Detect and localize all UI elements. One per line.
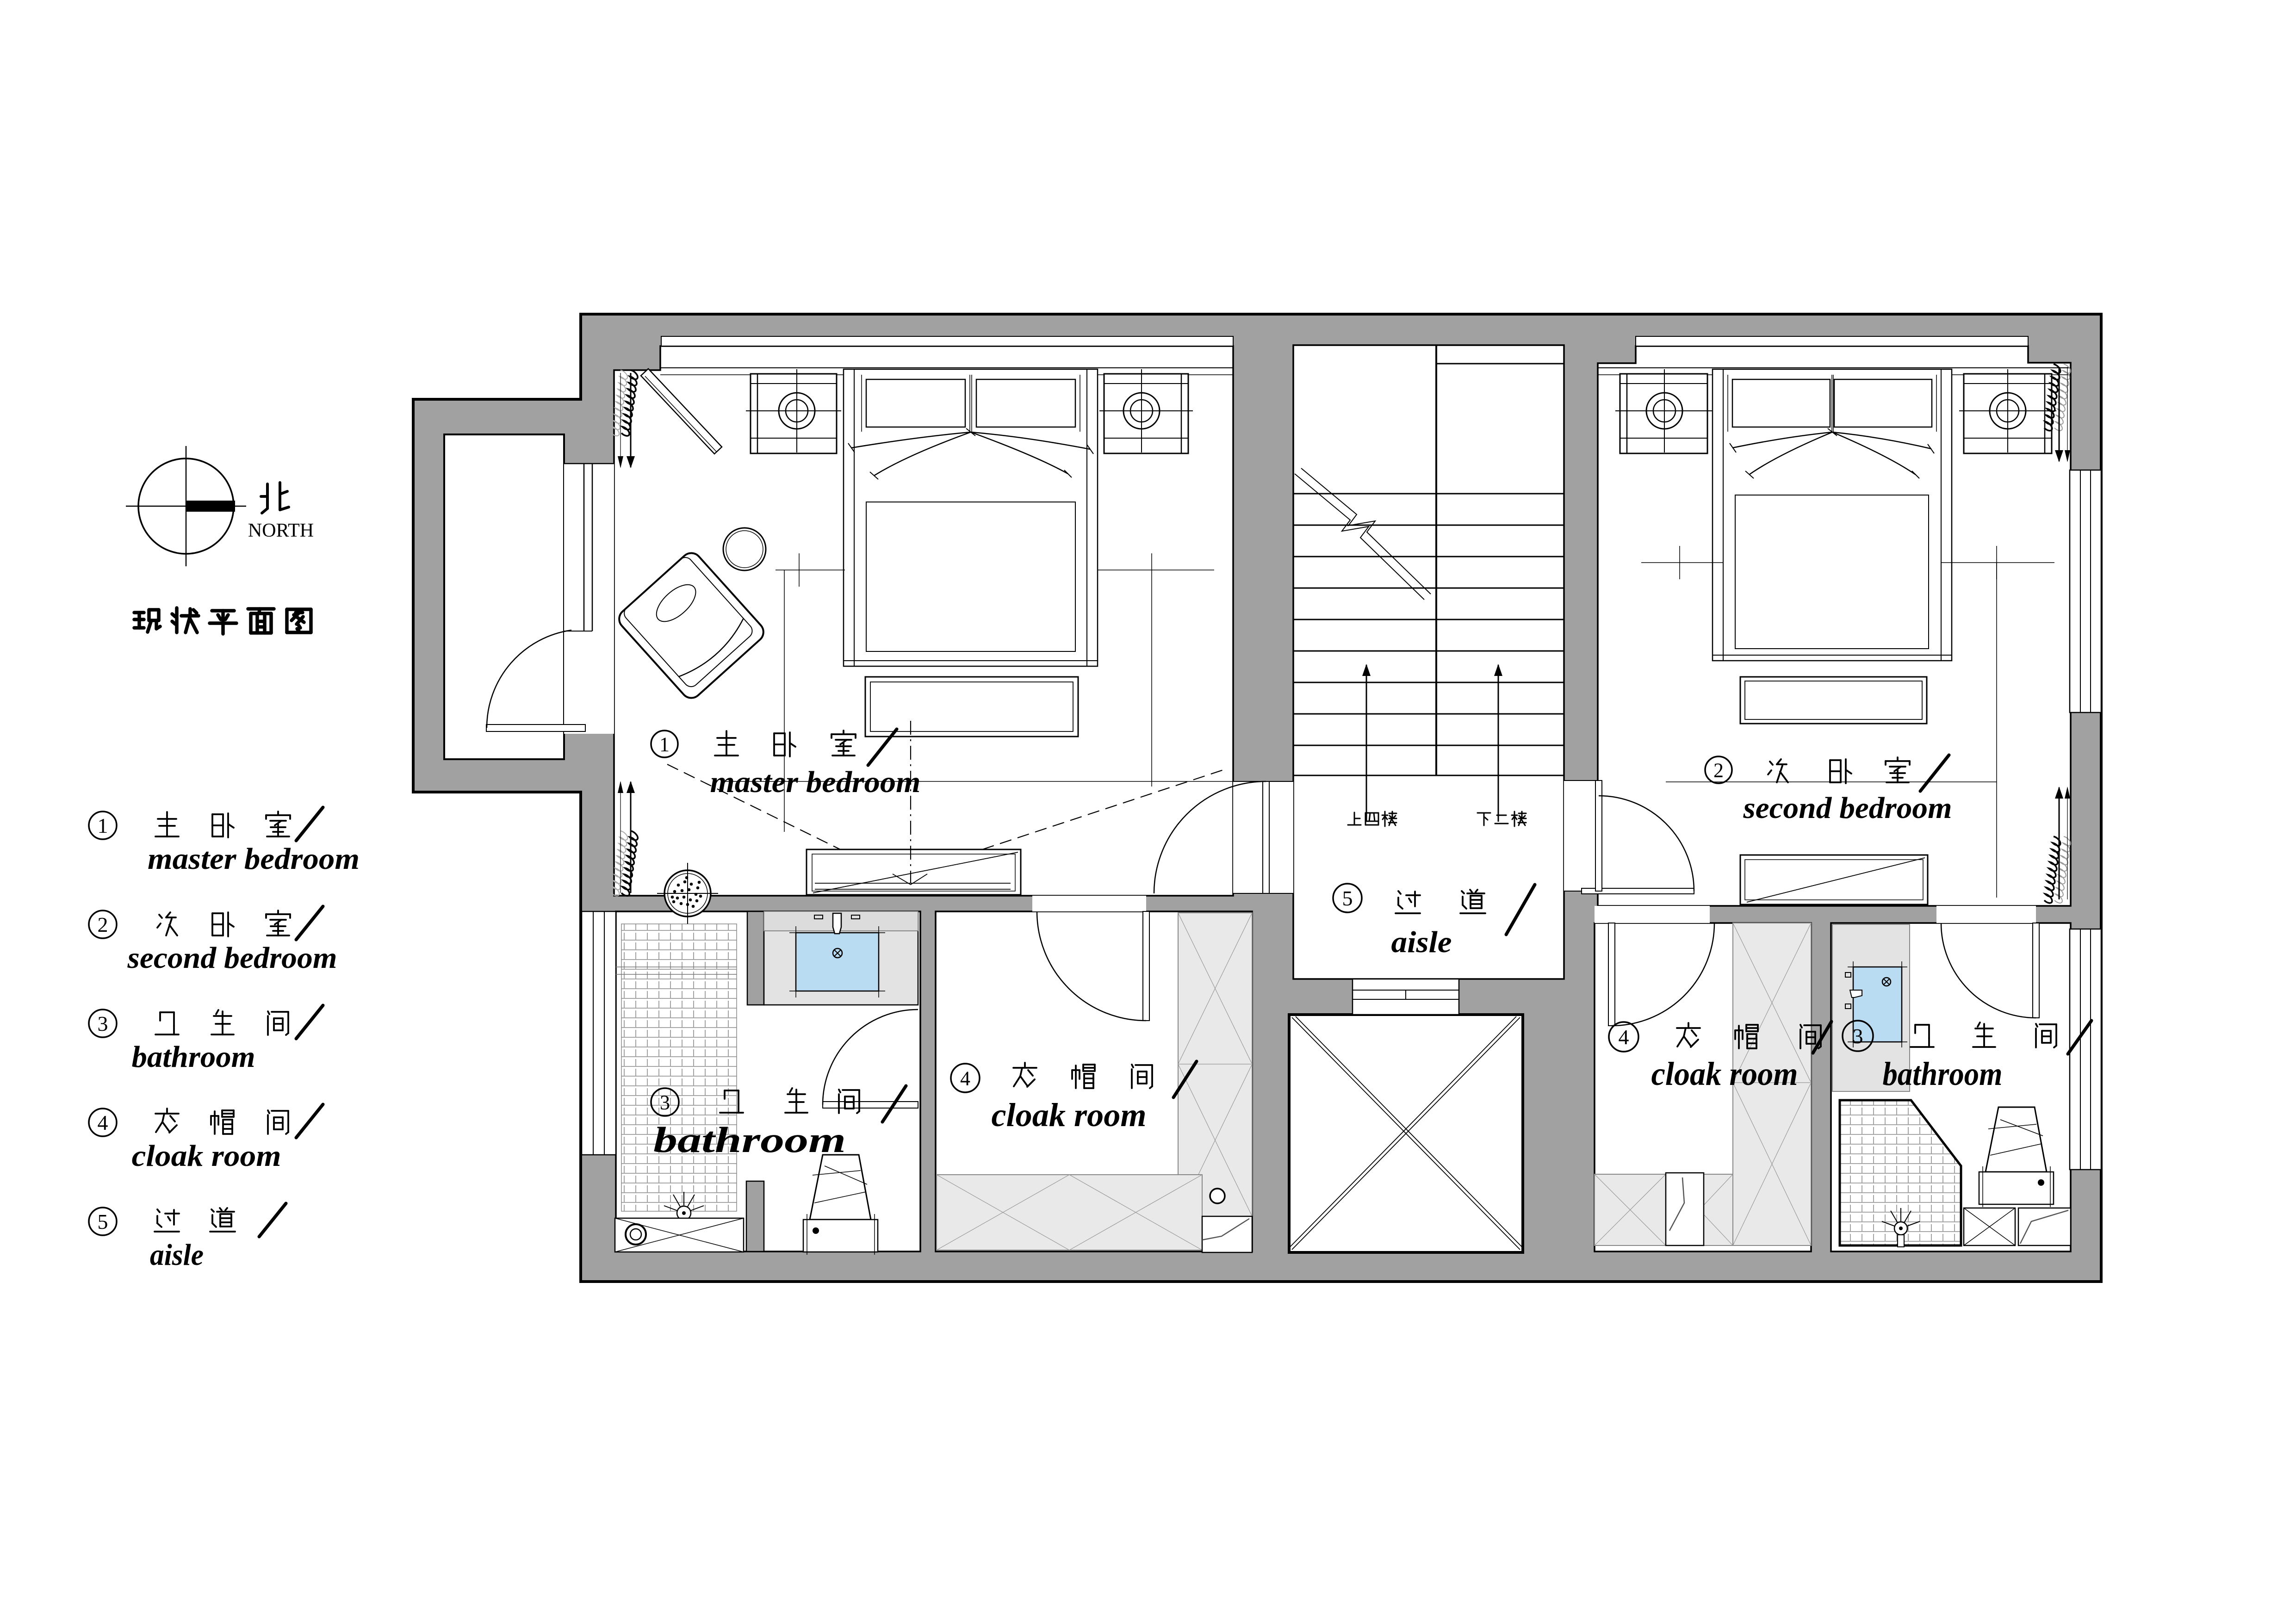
svg-text:cloak room: cloak room (992, 1096, 1147, 1134)
svg-text:second bedroom: second bedroom (127, 941, 337, 975)
svg-text:1: 1 (659, 733, 670, 756)
svg-text:master bedroom: master bedroom (710, 765, 921, 799)
svg-text:cloak room: cloak room (132, 1139, 281, 1173)
svg-text:master bedroom: master bedroom (148, 842, 360, 876)
svg-text:3: 3 (1853, 1024, 1863, 1048)
svg-text:4: 4 (98, 1111, 108, 1134)
svg-text:1: 1 (98, 814, 108, 837)
svg-text:bathroom: bathroom (1883, 1055, 2003, 1092)
svg-text:5: 5 (98, 1210, 108, 1233)
svg-text:aisle: aisle (150, 1238, 204, 1272)
svg-text:second bedroom: second bedroom (1743, 791, 1952, 825)
svg-text:NORTH: NORTH (248, 520, 314, 541)
svg-text:aisle: aisle (1391, 925, 1452, 959)
svg-text:4: 4 (960, 1067, 970, 1090)
svg-text:3: 3 (98, 1012, 108, 1035)
svg-text:4: 4 (1619, 1025, 1629, 1049)
svg-text:bathroom: bathroom (132, 1040, 255, 1074)
svg-text:bathroom: bathroom (653, 1120, 846, 1160)
svg-text:5: 5 (1342, 886, 1353, 910)
svg-text:3: 3 (660, 1091, 670, 1114)
svg-text:2: 2 (1713, 759, 1724, 781)
svg-text:2: 2 (98, 913, 108, 936)
svg-text:cloak room: cloak room (1651, 1055, 1798, 1092)
